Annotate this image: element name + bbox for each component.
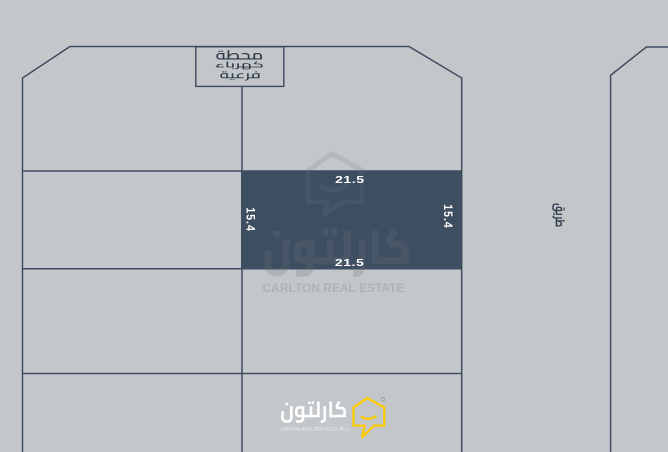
svg-text:CARLTON REAL ESTATE CO. W.L.L: CARLTON REAL ESTATE CO. W.L.L: [281, 426, 352, 431]
svg-text:CARLTON REAL ESTATE: CARLTON REAL ESTATE: [263, 281, 405, 295]
svg-text:21.5: 21.5: [335, 257, 364, 269]
svg-text:21.5: 21.5: [335, 174, 364, 186]
svg-text:15.4: 15.4: [441, 204, 454, 228]
svg-text:15.4: 15.4: [243, 207, 256, 231]
